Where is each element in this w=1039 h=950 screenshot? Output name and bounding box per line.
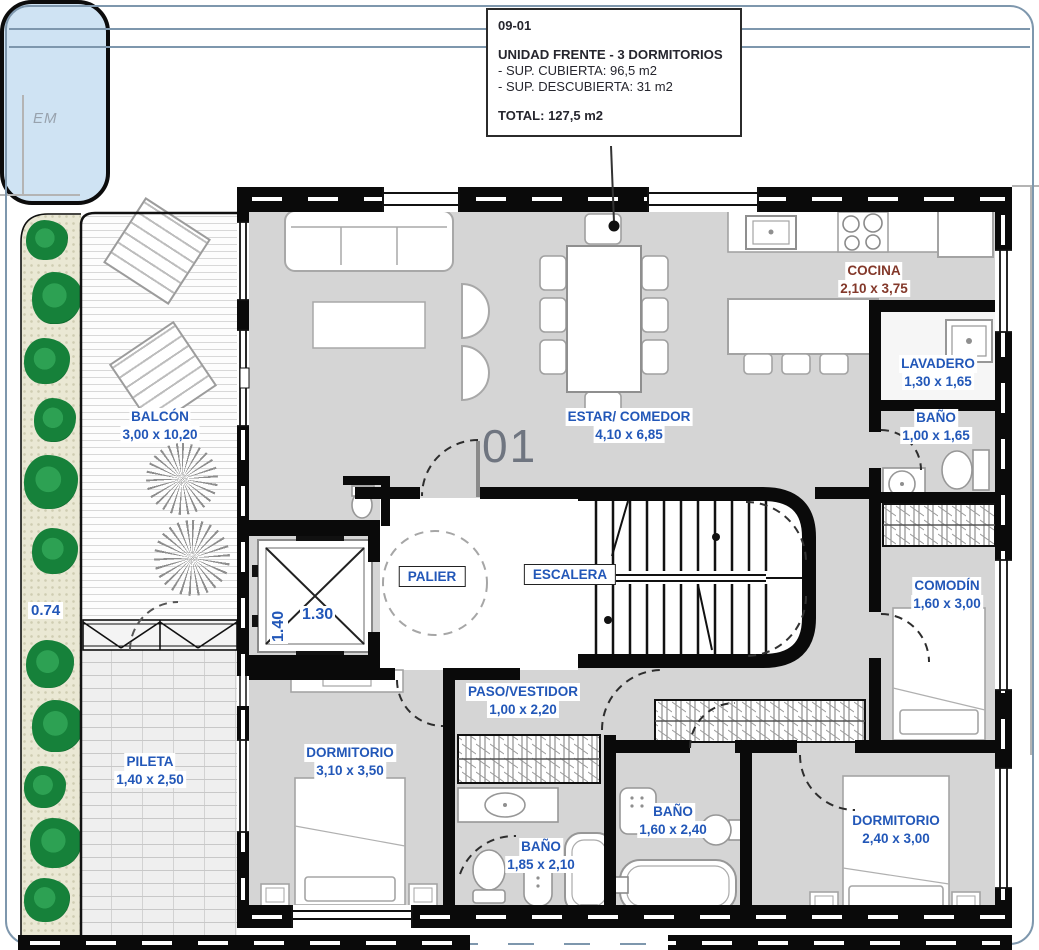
room-label-comodin: COMODÍN 1,60 x 3,00 <box>911 577 983 612</box>
unit-title: UNIDAD FRENTE - 3 DORMITORIOS <box>498 47 730 62</box>
plan-linework <box>0 0 1039 950</box>
room-label-bano-2: BAÑO 1,60 x 2,40 <box>637 803 709 838</box>
room-label-bano-small: BAÑO 1,00 x 1,65 <box>900 409 972 444</box>
room-label-paso-vestidor: PASO/VESTIDOR 1,00 x 2,20 <box>466 683 580 718</box>
room-label-dormitorio-1: DORMITORIO 3,10 x 3,50 <box>304 744 396 779</box>
room-label-bano-1: BAÑO 1,85 x 2,10 <box>505 838 577 873</box>
room-label-balcon: BALCÓN 3,00 x 10,20 <box>120 408 199 443</box>
em-label: EM <box>33 110 58 127</box>
room-label-pileta: PILETA 1,40 x 2,50 <box>114 753 186 788</box>
planter-dimension: 0.74 <box>28 602 63 619</box>
unit-info-box: 09-01 UNIDAD FRENTE - 3 DORMITORIOS - SU… <box>486 8 742 137</box>
room-label-escalera: ESCALERA <box>524 564 616 585</box>
room-label-estar-comedor: ESTAR/ COMEDOR 4,10 x 6,85 <box>566 408 693 443</box>
unit-number-label: 01 <box>482 419 537 473</box>
room-label-palier: PALIER <box>399 566 466 587</box>
floor-plan-canvas: 09-01 UNIDAD FRENTE - 3 DORMITORIOS - SU… <box>0 0 1039 950</box>
room-label-dormitorio-2: DORMITORIO 2,40 x 3,00 <box>850 812 942 847</box>
room-label-lavadero: LAVADERO 1,30 x 1,65 <box>899 355 977 390</box>
elevator-width-dim: 1.40 <box>270 609 288 644</box>
uncovered-area: - SUP. DESCUBIERTA: 31 m2 <box>498 79 730 94</box>
covered-area: - SUP. CUBIERTA: 96,5 m2 <box>498 63 730 78</box>
unit-code: 09-01 <box>498 18 730 33</box>
elevator-depth-dim: 1.30 <box>300 606 335 624</box>
room-label-cocina: COCINA 2,10 x 3,75 <box>838 262 910 297</box>
exterior-outlines <box>21 213 237 950</box>
total-area: TOTAL: 127,5 m2 <box>498 108 730 123</box>
